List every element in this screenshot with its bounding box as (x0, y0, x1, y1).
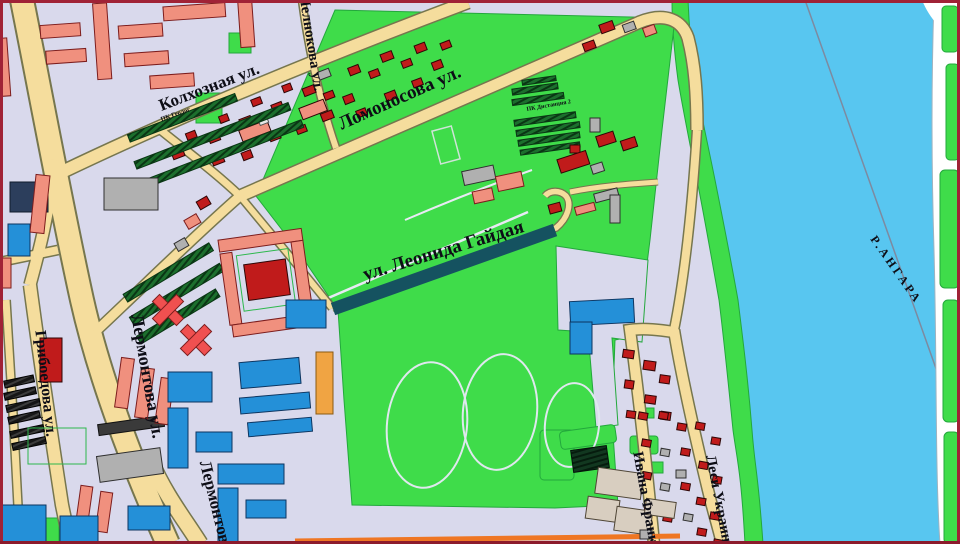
map-canvas[interactable]: Колхозная ул. Ломоносова ул. Челнокова у… (0, 0, 960, 544)
map-viewport[interactable]: Колхозная ул. Ломоносова ул. Челнокова у… (0, 0, 960, 544)
arterial-road (295, 536, 680, 541)
